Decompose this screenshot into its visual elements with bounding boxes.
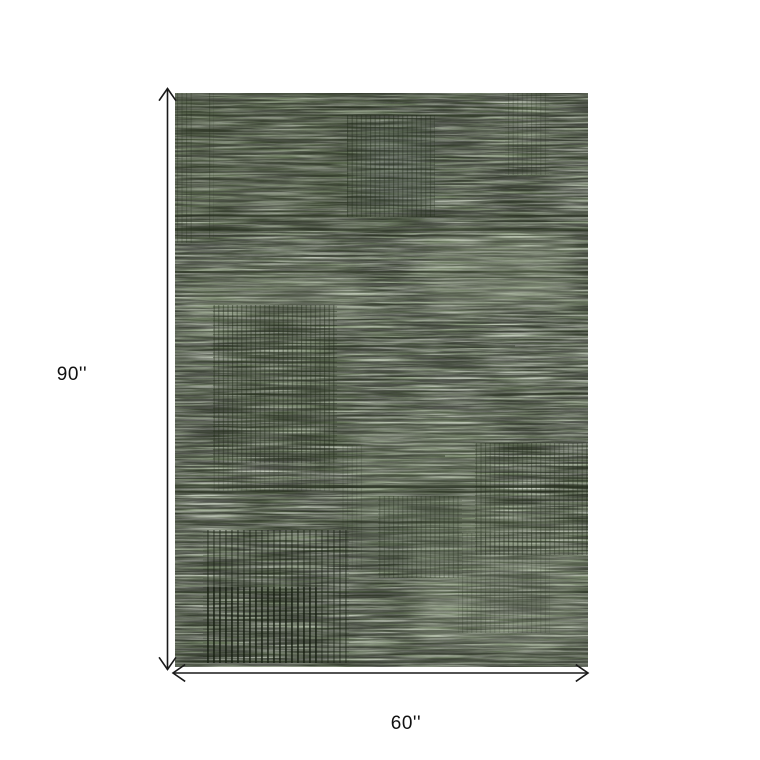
width-arrow: [173, 665, 588, 681]
height-arrow: [160, 89, 176, 670]
rug-texture: [175, 93, 588, 667]
width-dimension-label: 60'': [370, 713, 442, 735]
dimension-diagram: 90'' 60'': [0, 0, 760, 760]
rug-image: [175, 93, 588, 667]
height-dimension-label: 90'': [36, 364, 108, 386]
